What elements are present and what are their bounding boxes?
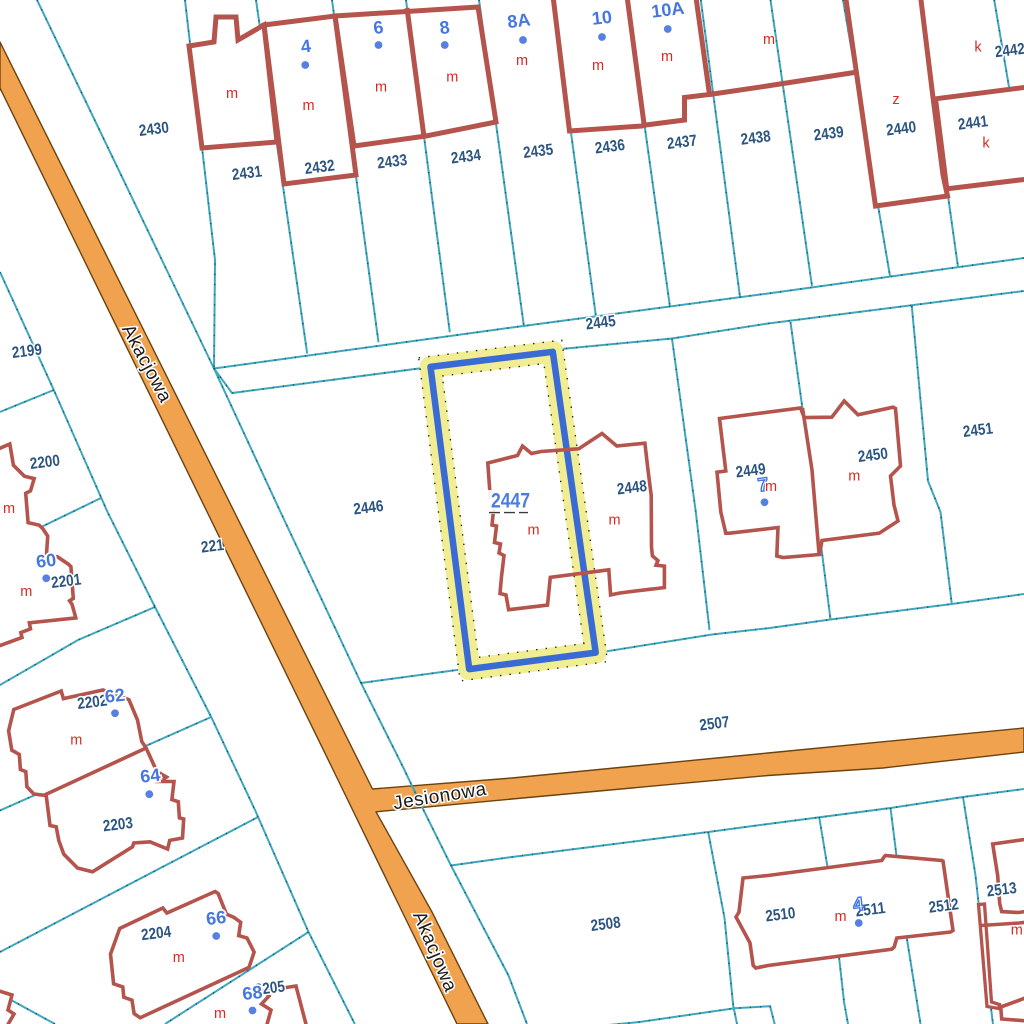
svg-text:2201: 2201 xyxy=(50,571,82,592)
svg-text:m: m xyxy=(214,1006,226,1022)
svg-text:m: m xyxy=(302,98,314,114)
svg-text:2431: 2431 xyxy=(231,163,263,184)
svg-text:m: m xyxy=(516,53,528,69)
svg-text:m: m xyxy=(70,732,82,748)
svg-text:2442: 2442 xyxy=(994,41,1024,62)
svg-text:z: z xyxy=(892,92,899,108)
svg-text:2445: 2445 xyxy=(585,313,617,334)
svg-text:m: m xyxy=(226,86,238,102)
svg-text:2512: 2512 xyxy=(928,896,960,917)
svg-text:2436: 2436 xyxy=(594,137,626,158)
svg-text:m: m xyxy=(834,909,846,925)
svg-text:m: m xyxy=(20,584,32,600)
svg-text:68: 68 xyxy=(241,982,263,1004)
svg-text:2451: 2451 xyxy=(962,420,994,441)
svg-text:m: m xyxy=(3,501,15,517)
svg-text:2432: 2432 xyxy=(304,157,336,178)
svg-text:2448: 2448 xyxy=(616,478,648,499)
svg-text:m: m xyxy=(527,522,539,538)
svg-text:m: m xyxy=(1011,922,1023,938)
svg-text:2437: 2437 xyxy=(666,132,698,153)
svg-text:m: m xyxy=(446,69,458,85)
svg-text:2513: 2513 xyxy=(986,880,1018,901)
svg-text:2202: 2202 xyxy=(76,692,108,713)
svg-text:62: 62 xyxy=(104,685,126,707)
svg-text:k: k xyxy=(982,136,990,152)
svg-text:m: m xyxy=(592,58,604,74)
svg-text:8A: 8A xyxy=(506,9,531,32)
svg-text:66: 66 xyxy=(205,907,227,929)
svg-text:2446: 2446 xyxy=(353,498,385,519)
svg-text:m: m xyxy=(375,79,387,95)
svg-text:2203: 2203 xyxy=(102,815,134,836)
svg-text:2439: 2439 xyxy=(813,124,845,145)
svg-text:m: m xyxy=(661,49,673,65)
svg-text:2204: 2204 xyxy=(140,924,172,945)
svg-text:m: m xyxy=(848,468,860,484)
svg-text:m: m xyxy=(763,32,775,48)
svg-text:221: 221 xyxy=(200,537,225,557)
svg-text:m: m xyxy=(608,513,620,529)
svg-text:2450: 2450 xyxy=(857,445,889,466)
svg-text:2510: 2510 xyxy=(765,905,797,926)
svg-text:2199: 2199 xyxy=(11,341,43,362)
svg-text:60: 60 xyxy=(35,550,57,572)
svg-text:2200: 2200 xyxy=(29,452,61,473)
svg-text:2508: 2508 xyxy=(590,914,622,935)
svg-text:2435: 2435 xyxy=(522,141,554,162)
svg-text:2438: 2438 xyxy=(740,128,772,149)
svg-text:2434: 2434 xyxy=(450,147,482,168)
svg-text:2441: 2441 xyxy=(957,113,989,134)
svg-text:k: k xyxy=(974,39,982,55)
svg-text:2447: 2447 xyxy=(491,490,530,513)
svg-text:m: m xyxy=(173,950,185,966)
svg-text:2433: 2433 xyxy=(376,152,408,173)
svg-text:10: 10 xyxy=(591,7,613,29)
svg-text:2507: 2507 xyxy=(699,714,731,735)
svg-text:m: m xyxy=(765,479,777,495)
svg-text:2430: 2430 xyxy=(138,119,170,140)
svg-text:64: 64 xyxy=(139,765,161,787)
svg-text:2440: 2440 xyxy=(885,119,917,140)
